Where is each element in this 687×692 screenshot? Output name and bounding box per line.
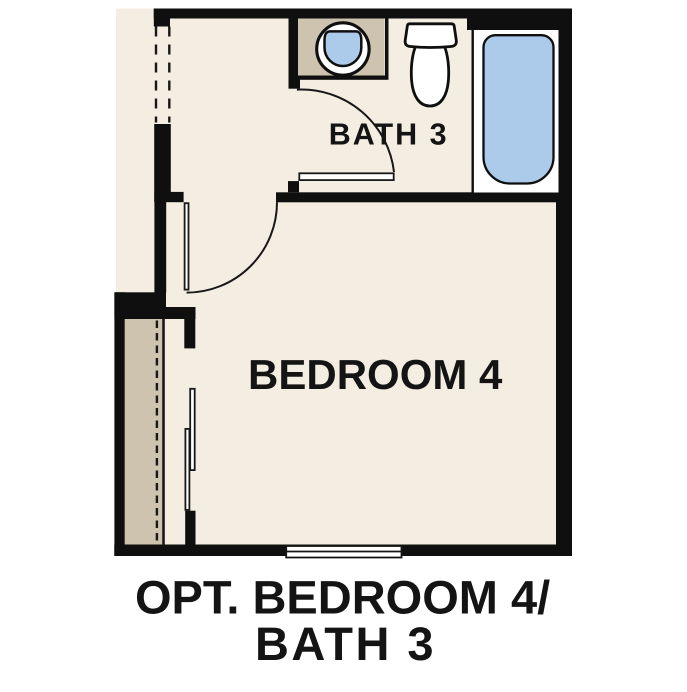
svg-text:BEDROOM 4: BEDROOM 4 (248, 351, 503, 398)
svg-text:BATH 3: BATH 3 (329, 117, 449, 151)
svg-text:OPT. BEDROOM 4/: OPT. BEDROOM 4/ (135, 571, 550, 624)
svg-text:BATH 3: BATH 3 (255, 617, 436, 670)
